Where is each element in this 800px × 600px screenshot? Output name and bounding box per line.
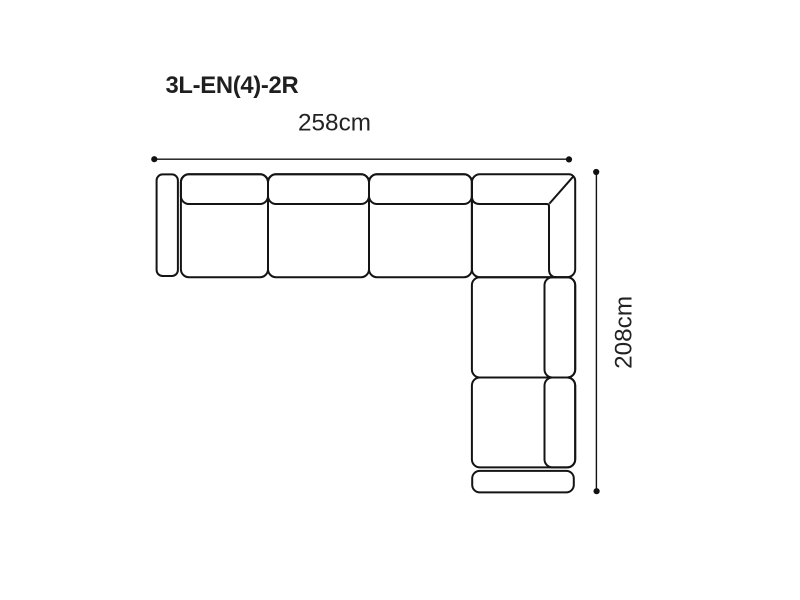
svg-text:208cm: 208cm [611,296,638,369]
svg-text:3L-EN(4)-2R: 3L-EN(4)-2R [166,72,299,99]
svg-text:258cm: 258cm [298,110,371,137]
